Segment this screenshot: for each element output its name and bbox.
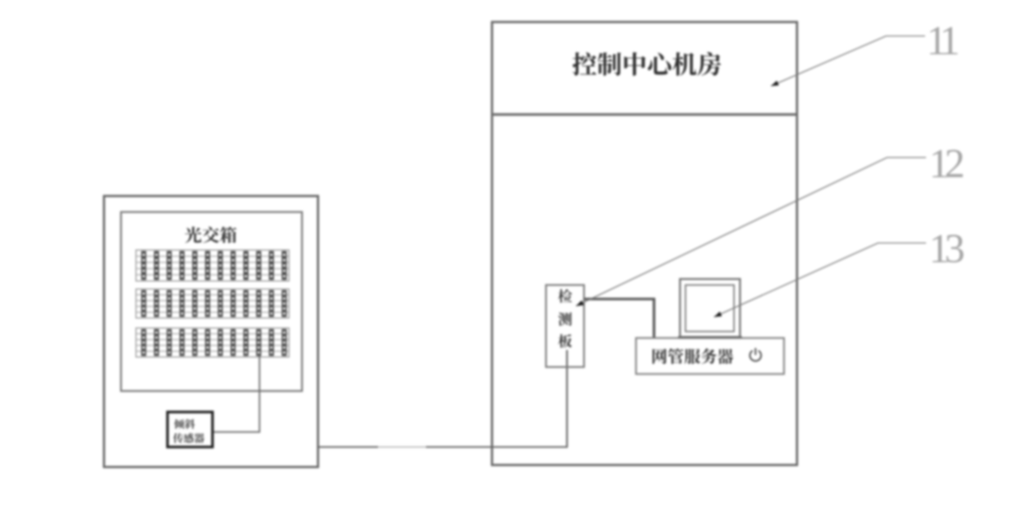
svg-text:12: 12 <box>929 140 964 186</box>
svg-text:13: 13 <box>929 225 964 271</box>
svg-text:11: 11 <box>927 17 959 63</box>
